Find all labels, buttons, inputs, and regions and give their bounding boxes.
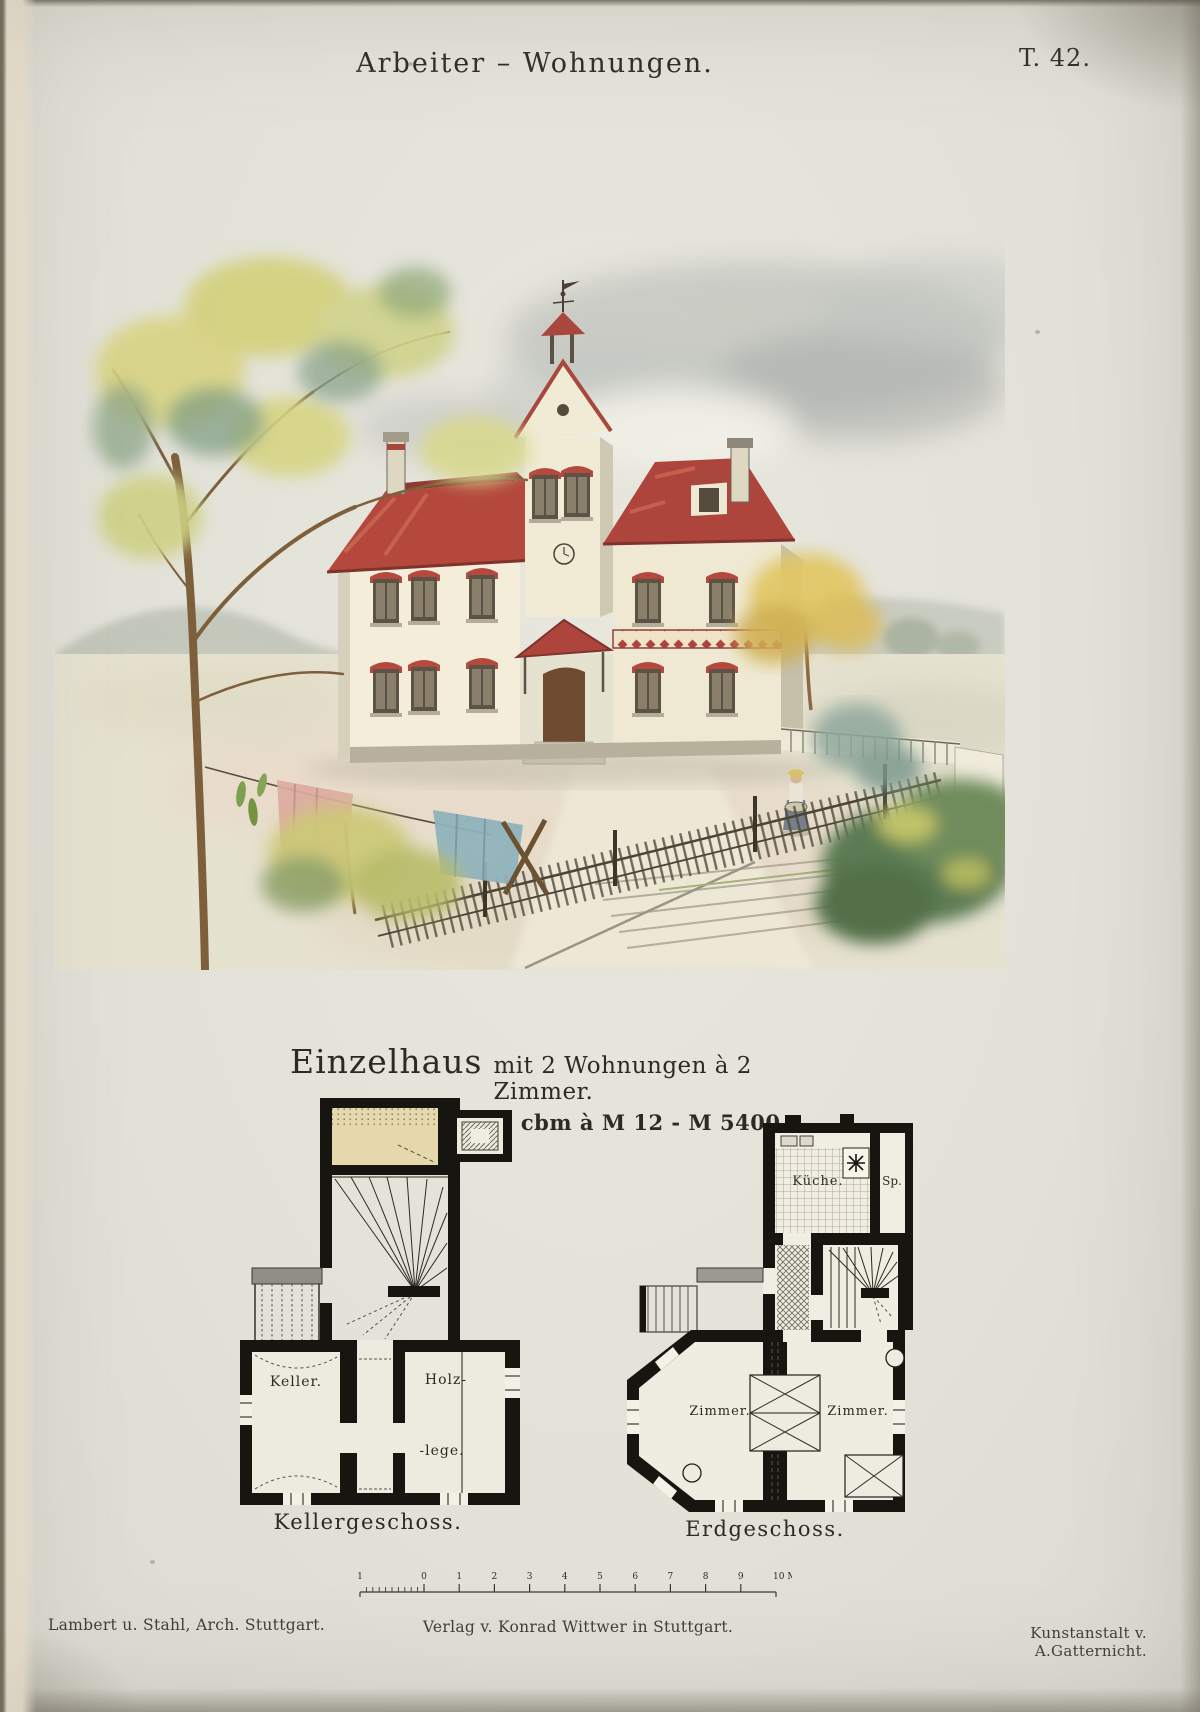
scale-tick: 3 — [527, 1572, 533, 1582]
scale-tick: 9 — [738, 1572, 744, 1582]
scale-tick: 1 — [456, 1572, 462, 1582]
basement-caption: Kellergeschoss. — [218, 1510, 518, 1534]
room-label-holz: Holz- — [425, 1372, 467, 1388]
plate-title: Arbeiter – Wohnungen. — [335, 48, 735, 79]
scale-line — [360, 1584, 776, 1597]
tower-wall — [525, 435, 600, 617]
ground-floor-plan: Küche. Sp. Zimmer. Zimmer. — [615, 1100, 915, 1512]
scale-zero: 0 — [421, 1572, 427, 1582]
scale-tick: 5 — [597, 1572, 603, 1582]
plate-number: T. 42. — [990, 44, 1120, 72]
stove-circle — [886, 1349, 904, 1367]
porch-roof — [517, 620, 611, 657]
room-label-kueche: Küche. — [792, 1174, 843, 1189]
scale-tick: 7 — [668, 1572, 674, 1582]
scale-tick: 2 — [492, 1572, 498, 1582]
room-label-keller: Keller. — [270, 1374, 322, 1390]
stove-circle — [683, 1464, 701, 1482]
room-label-sp: Sp. — [882, 1174, 902, 1188]
scale-bar: 1 0 1 2 3 4 5 6 7 8 9 10 Met. — [352, 1566, 792, 1608]
scale-left-1: 1 — [357, 1572, 363, 1582]
house-illustration — [55, 222, 1005, 970]
paper-speck — [150, 1560, 155, 1564]
basement-walls — [240, 1098, 520, 1505]
paper-speck — [1035, 330, 1040, 334]
ground-walls — [627, 1114, 913, 1512]
scale-tick: 8 — [703, 1572, 709, 1582]
footer-printer: Kunstanstalt v. A.Gatternicht. — [935, 1624, 1147, 1660]
entrance-door — [543, 667, 585, 742]
room-label-zimmer-right: Zimmer. — [827, 1404, 888, 1419]
subtitle-main: Einzelhaus — [290, 1042, 482, 1081]
basement-floor-plan: Keller. Holz- -lege. — [235, 1093, 525, 1513]
scale-end-label: 10 Met. — [773, 1572, 792, 1582]
footer-publisher: Verlag v. Konrad Wittwer in Stuttgart. — [408, 1618, 748, 1636]
left-wing-roof — [327, 480, 535, 572]
room-label-zimmer-left: Zimmer. — [689, 1404, 750, 1419]
room-label-lege: -lege. — [419, 1443, 464, 1459]
scale-tick: 6 — [632, 1572, 638, 1582]
footer-architects: Lambert u. Stahl, Arch. Stuttgart. — [48, 1616, 378, 1634]
subtitle-rest: mit 2 Wohnungen à 2 Zimmer. — [493, 1053, 850, 1105]
scale-tick: 4 — [562, 1572, 568, 1582]
ground-caption: Erdgeschoss. — [615, 1517, 915, 1541]
paper-speck — [408, 62, 413, 66]
